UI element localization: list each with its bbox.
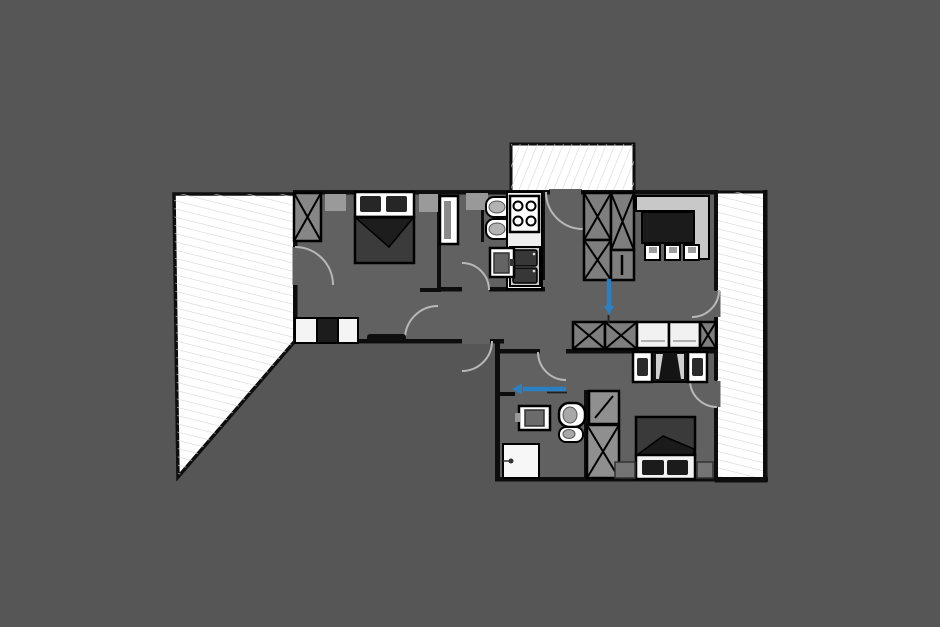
dining-chair-1 <box>645 245 660 260</box>
bedroom1-dresser <box>295 318 358 343</box>
wall-segment <box>763 190 768 482</box>
hall-wardrobe-block <box>584 193 634 280</box>
balcony-top <box>511 144 634 192</box>
wall-opening <box>549 189 582 196</box>
bedroom2-desk-chair-left <box>633 352 652 382</box>
bedroom2-desk <box>652 352 688 382</box>
bathroom-toilet <box>559 403 585 427</box>
wall-segment <box>714 190 718 290</box>
terrace-right <box>716 192 766 481</box>
wall-segment <box>420 288 441 292</box>
wall-segment <box>500 349 540 354</box>
bedroom2-double-bed <box>636 417 695 479</box>
bedroom2-nightstand-left <box>615 462 635 478</box>
bathroom-vanity <box>515 406 550 430</box>
dining-chair-3 <box>684 245 699 260</box>
bedroom1-wardrobe <box>294 193 321 241</box>
wall-segment <box>714 407 718 481</box>
bedroom1-nightstand-right <box>419 194 438 212</box>
wall-opening <box>714 381 721 407</box>
bedroom2-cabinet-mirror <box>589 391 619 424</box>
bedroom1-tall-cabinet <box>440 196 458 244</box>
floor-plan <box>0 0 940 627</box>
terrace-right-hatch <box>716 192 766 481</box>
dining-table <box>642 212 694 243</box>
door-entrance <box>462 341 492 371</box>
balcony-top-hatch <box>511 144 634 192</box>
kitchen-stove <box>510 196 539 232</box>
terrace-left <box>174 194 295 477</box>
hall-closet-sliding <box>637 322 716 348</box>
bedroom1-double-bed <box>355 192 414 263</box>
bathroom-shower <box>503 444 539 478</box>
hall-closet-x <box>573 322 637 349</box>
bedroom1-nightstand-left <box>325 194 346 211</box>
wall-segment <box>495 339 500 481</box>
washing-machine <box>490 248 514 277</box>
bedroom2-desk-chair-right <box>688 352 707 382</box>
bedroom2-wardrobe <box>587 425 619 478</box>
kitchen-wall-cabinet <box>466 193 488 210</box>
terrace-left-hatch <box>174 194 295 477</box>
dining-chair-2 <box>665 245 680 260</box>
bathroom-sink <box>559 427 583 442</box>
floor-plan-canvas <box>0 0 940 627</box>
bedroom1-tv <box>367 334 406 341</box>
bedroom2-nightstand-right <box>697 462 713 478</box>
wall-opening <box>293 247 300 285</box>
wall-segment <box>441 287 462 292</box>
wall-segment <box>500 392 515 396</box>
